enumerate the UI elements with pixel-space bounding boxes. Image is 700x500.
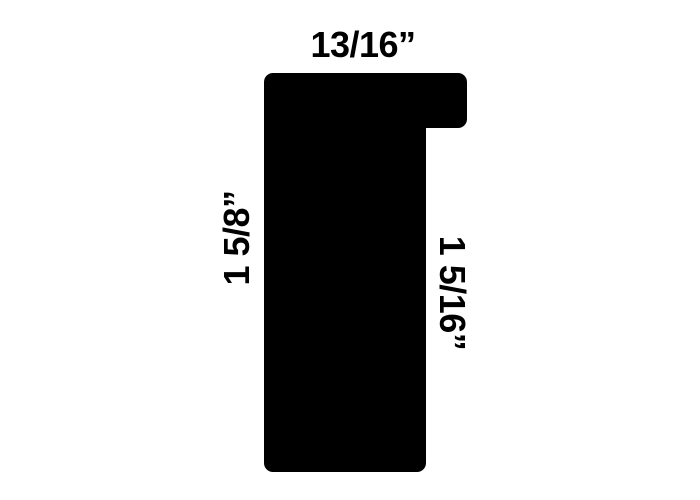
dimension-label-right-rabbet-depth: 1 5/16” bbox=[434, 236, 470, 351]
diagram-canvas: 13/16” 1 5/8” 1 5/16” bbox=[0, 0, 700, 500]
dimension-label-top-width: 13/16” bbox=[310, 27, 415, 63]
moulding-profile-shape bbox=[0, 0, 700, 500]
dimension-label-left-height: 1 5/8” bbox=[219, 190, 255, 285]
